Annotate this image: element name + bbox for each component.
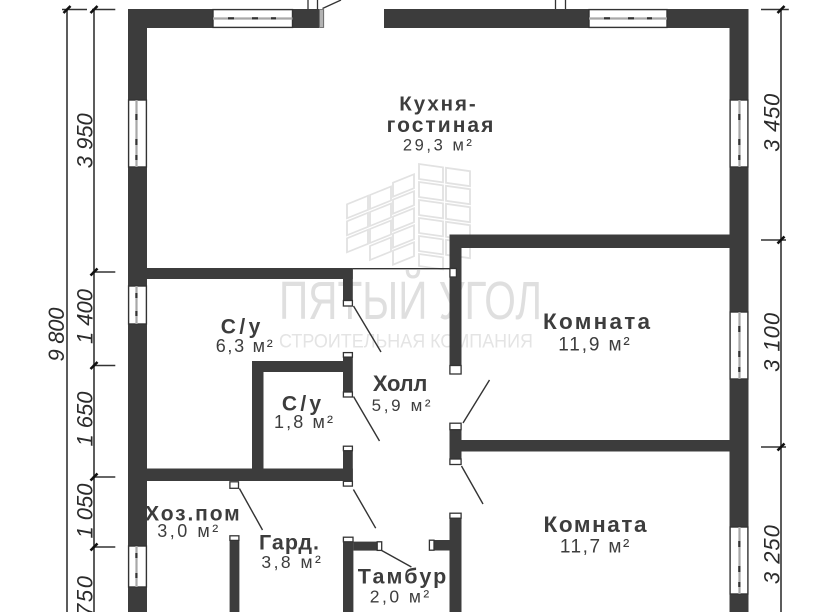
svg-text:1 650: 1 650 xyxy=(73,391,98,447)
svg-text:Кухня-: Кухня- xyxy=(399,92,476,115)
svg-text:Гард.: Гард. xyxy=(259,531,319,555)
svg-text:СТРОИТЕЛЬНАЯ КОМПАНИЯ: СТРОИТЕЛЬНАЯ КОМПАНИЯ xyxy=(279,332,533,353)
svg-text:гостиная: гостиная xyxy=(387,114,494,137)
svg-text:3 450: 3 450 xyxy=(760,93,785,152)
svg-text:3 950: 3 950 xyxy=(73,112,98,168)
svg-text:11,9 м²: 11,9 м² xyxy=(558,335,630,356)
svg-text:1 400: 1 400 xyxy=(73,288,98,344)
svg-text:3 100: 3 100 xyxy=(760,312,785,372)
svg-text:11,7 м²: 11,7 м² xyxy=(560,537,630,558)
svg-text:Комната: Комната xyxy=(544,512,647,537)
svg-text:Комната: Комната xyxy=(543,309,650,334)
svg-text:3 250: 3 250 xyxy=(760,524,785,584)
svg-text:1 050: 1 050 xyxy=(73,483,98,539)
svg-text:750: 750 xyxy=(73,575,98,612)
svg-text:Холл: Холл xyxy=(373,371,428,396)
svg-text:ПЯТЫЙ УГОЛ: ПЯТЫЙ УГОЛ xyxy=(279,270,542,331)
svg-text:9 800: 9 800 xyxy=(44,307,69,362)
